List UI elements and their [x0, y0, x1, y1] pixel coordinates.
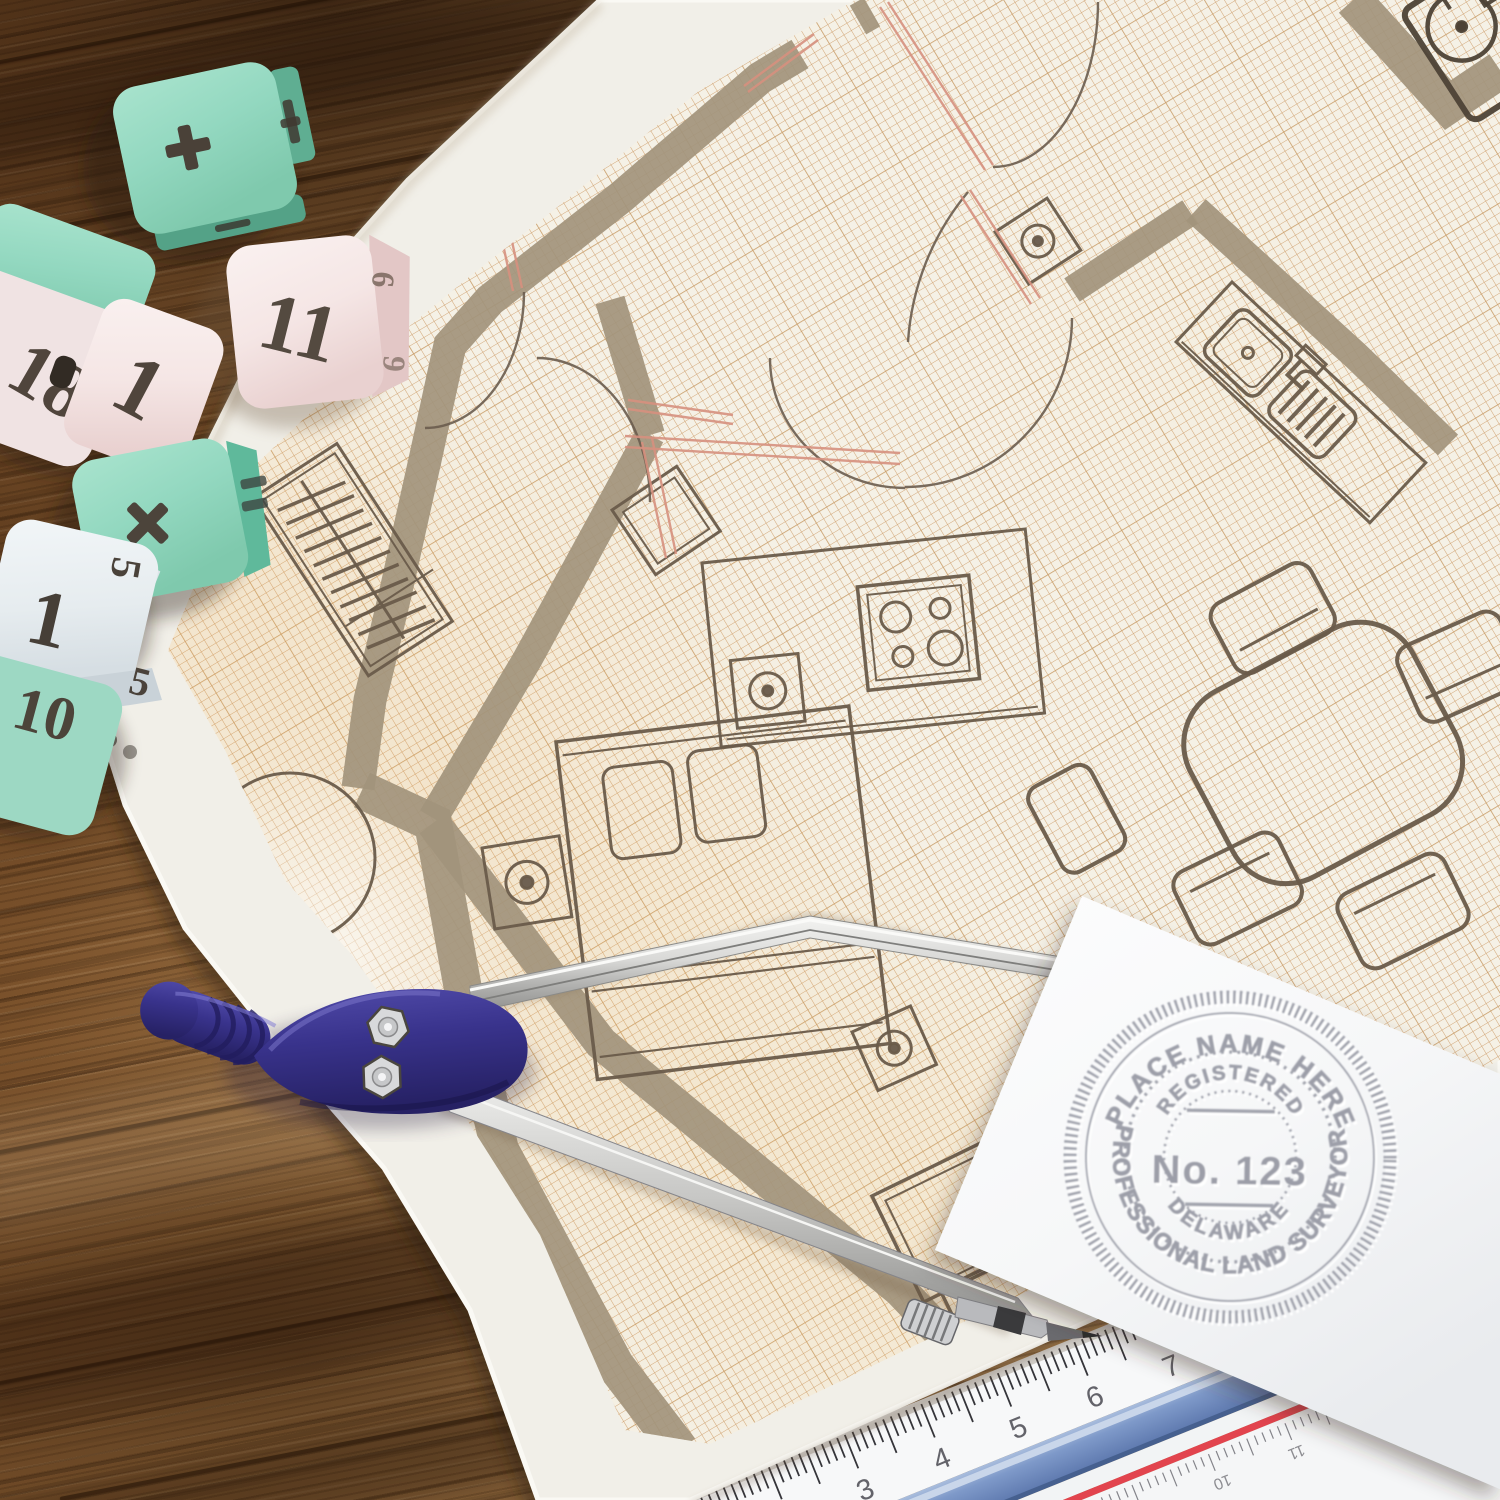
svg-text:6: 6 [365, 270, 402, 288]
svg-text:9: 9 [376, 355, 413, 373]
svg-text:No. 123: No. 123 [1151, 1148, 1308, 1195]
